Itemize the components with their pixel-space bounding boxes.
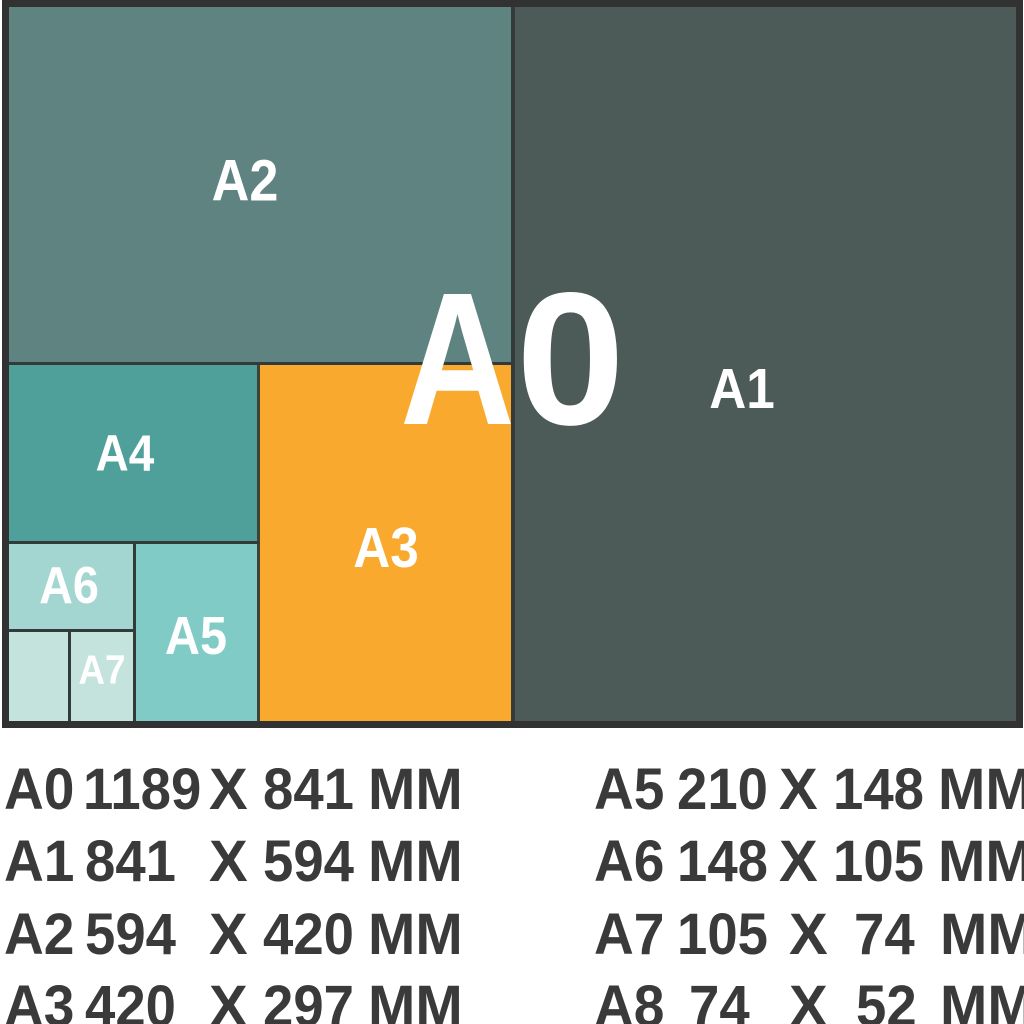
svg-text:0: 0	[516, 254, 625, 465]
svg-text:A: A	[400, 254, 515, 465]
